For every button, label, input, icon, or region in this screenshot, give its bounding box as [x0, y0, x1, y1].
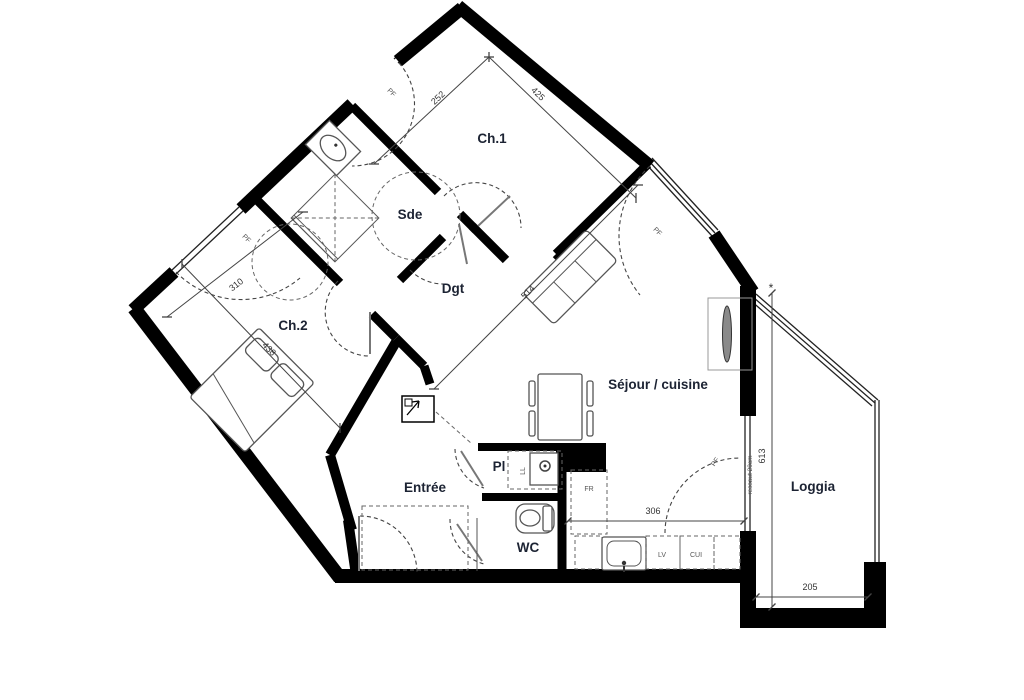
room-label-ch1: Ch.1 — [477, 131, 507, 146]
dim-label: 310 — [227, 276, 245, 293]
room-label-pl: Pl — [493, 459, 506, 474]
bed — [190, 328, 314, 452]
star-marker: * — [769, 281, 774, 295]
dim-loggia-width: 205 — [753, 582, 872, 601]
dim-label: 425 — [529, 85, 547, 103]
dishwasher-tag: LV — [658, 552, 666, 559]
toilet — [516, 504, 554, 533]
door-leaves — [359, 196, 510, 571]
dim-label: 306 — [645, 506, 660, 516]
electrical-panel — [402, 396, 434, 422]
window-tag-ch1: PF — [385, 87, 396, 98]
dining-table — [529, 374, 593, 440]
room-label-ch2: Ch.2 — [278, 318, 307, 333]
dim-label: 252 — [429, 89, 447, 107]
floor-plan: 252 425 310 438 514 306 — [0, 0, 1024, 700]
room-label-dgt: Dgt — [442, 281, 465, 296]
exterior-walls — [133, 6, 886, 628]
room-label-sejour: Séjour / cuisine — [608, 377, 708, 392]
dim-kitchen-width: 306 — [565, 506, 748, 525]
room-label-loggia: Loggia — [791, 479, 836, 494]
cooker-tag: CUI — [690, 552, 702, 559]
window-tag-loggia: PF — [710, 456, 721, 467]
interior-walls — [255, 106, 648, 575]
dim-label: 613 — [757, 448, 767, 463]
washing-machine — [508, 451, 562, 489]
dim-loggia-depth: 613 * — [757, 281, 776, 611]
room-label-sde: Sde — [398, 207, 423, 222]
entry-mat-zone — [362, 506, 468, 570]
washbasin — [305, 120, 360, 175]
window-tag-sejour: PF — [651, 226, 662, 237]
window-tag-ch2: PF — [240, 233, 251, 244]
door-swings — [176, 63, 740, 573]
fridge-tag: FR — [584, 486, 593, 493]
dim-label: 205 — [802, 582, 817, 592]
fridge-zone — [571, 470, 607, 534]
ressaut-note: ressaut 20cm — [747, 455, 754, 494]
floor-plan-page: 252 425 310 438 514 306 — [0, 0, 1024, 700]
room-label-entree: Entrée — [404, 480, 447, 495]
room-label-wc: WC — [517, 540, 540, 555]
washing-machine-tag: LL — [520, 467, 527, 475]
